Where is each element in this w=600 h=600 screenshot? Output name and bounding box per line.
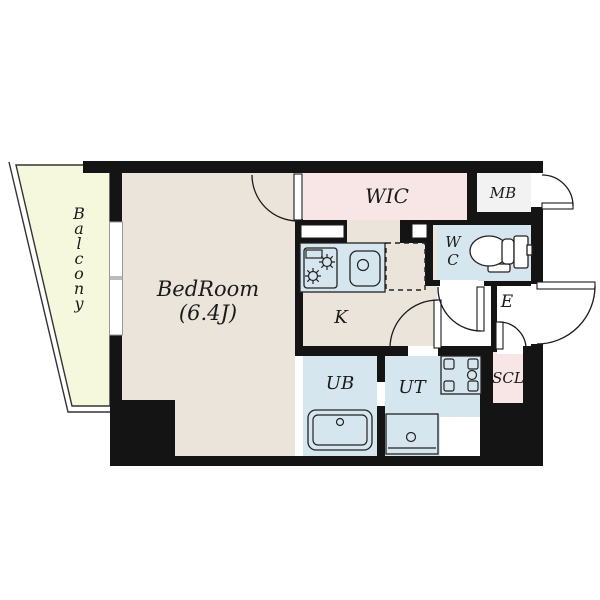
toilet-handle <box>527 245 532 255</box>
wall-west-lower <box>110 334 122 400</box>
balcony-letter: y <box>73 294 84 313</box>
bedroom-label: BedRoom <box>156 277 259 301</box>
kitchen-counter <box>300 243 385 292</box>
washer-pan <box>441 356 481 394</box>
wall-ub-top <box>295 346 408 356</box>
wall-bottom <box>110 456 543 466</box>
ub-doorway <box>377 382 385 406</box>
wic-opening <box>301 225 344 238</box>
window-sash-divider <box>110 276 122 280</box>
wall-wic-wc <box>425 220 467 225</box>
wall-sw-block <box>110 400 175 456</box>
mb-door-leaf <box>542 203 573 209</box>
wall-west-upper <box>110 173 122 223</box>
floor-plan: BedRoom (6.4J) WIC MB W C E SCL K UB UT … <box>0 0 600 600</box>
bathtub-outer <box>308 410 372 450</box>
mb-door <box>542 175 573 209</box>
toilet-tank <box>514 236 528 268</box>
wc-label-line2: C <box>447 251 459 269</box>
bedroom-size-label: (6.4J) <box>179 301 237 325</box>
ut-label: UT <box>398 377 427 398</box>
bedroom-door-leaf <box>294 174 302 220</box>
entrance-door-arc <box>537 286 595 344</box>
entrance-door-leaf <box>537 282 595 289</box>
refrigerator-space-icon <box>386 243 425 290</box>
kitchen-sink-icon <box>350 251 380 286</box>
scl-label: SCL <box>492 369 524 387</box>
kitchen-label: K <box>333 307 349 328</box>
mb-door-arc <box>542 175 573 206</box>
bathtub-icon <box>308 410 372 450</box>
wall-mb-bottom <box>467 212 543 225</box>
wall-wc-south <box>484 281 531 286</box>
wc-label-line1: W <box>445 233 462 251</box>
entrance-door <box>537 282 595 344</box>
washer-pan-icon <box>441 356 481 394</box>
washbasin-icon <box>386 414 438 454</box>
ut-white-floor <box>440 417 480 456</box>
mb-label: MB <box>489 184 516 202</box>
wc-door-leaf <box>477 287 484 331</box>
wall-top <box>83 161 543 173</box>
scl-door-leaf <box>496 322 503 349</box>
toilet-seat <box>502 239 514 264</box>
kitchen-door-leaf <box>434 300 441 348</box>
wc-doorway <box>440 280 478 286</box>
sliding-window <box>110 222 123 335</box>
balcony-label: B a l c o n y <box>72 204 85 313</box>
balcony-floor <box>16 165 110 406</box>
wall-niche <box>412 224 427 238</box>
stove <box>304 248 337 288</box>
floor-plan-canvas: BedRoom (6.4J) WIC MB W C E SCL K UB UT … <box>0 0 600 600</box>
wall-ut-top <box>438 346 485 356</box>
wall-wc-south-stub <box>433 280 441 286</box>
wic-label: WIC <box>365 184 409 208</box>
room-floors <box>9 162 531 456</box>
ub-label: UB <box>326 373 354 394</box>
entrance-label: E <box>500 292 514 312</box>
